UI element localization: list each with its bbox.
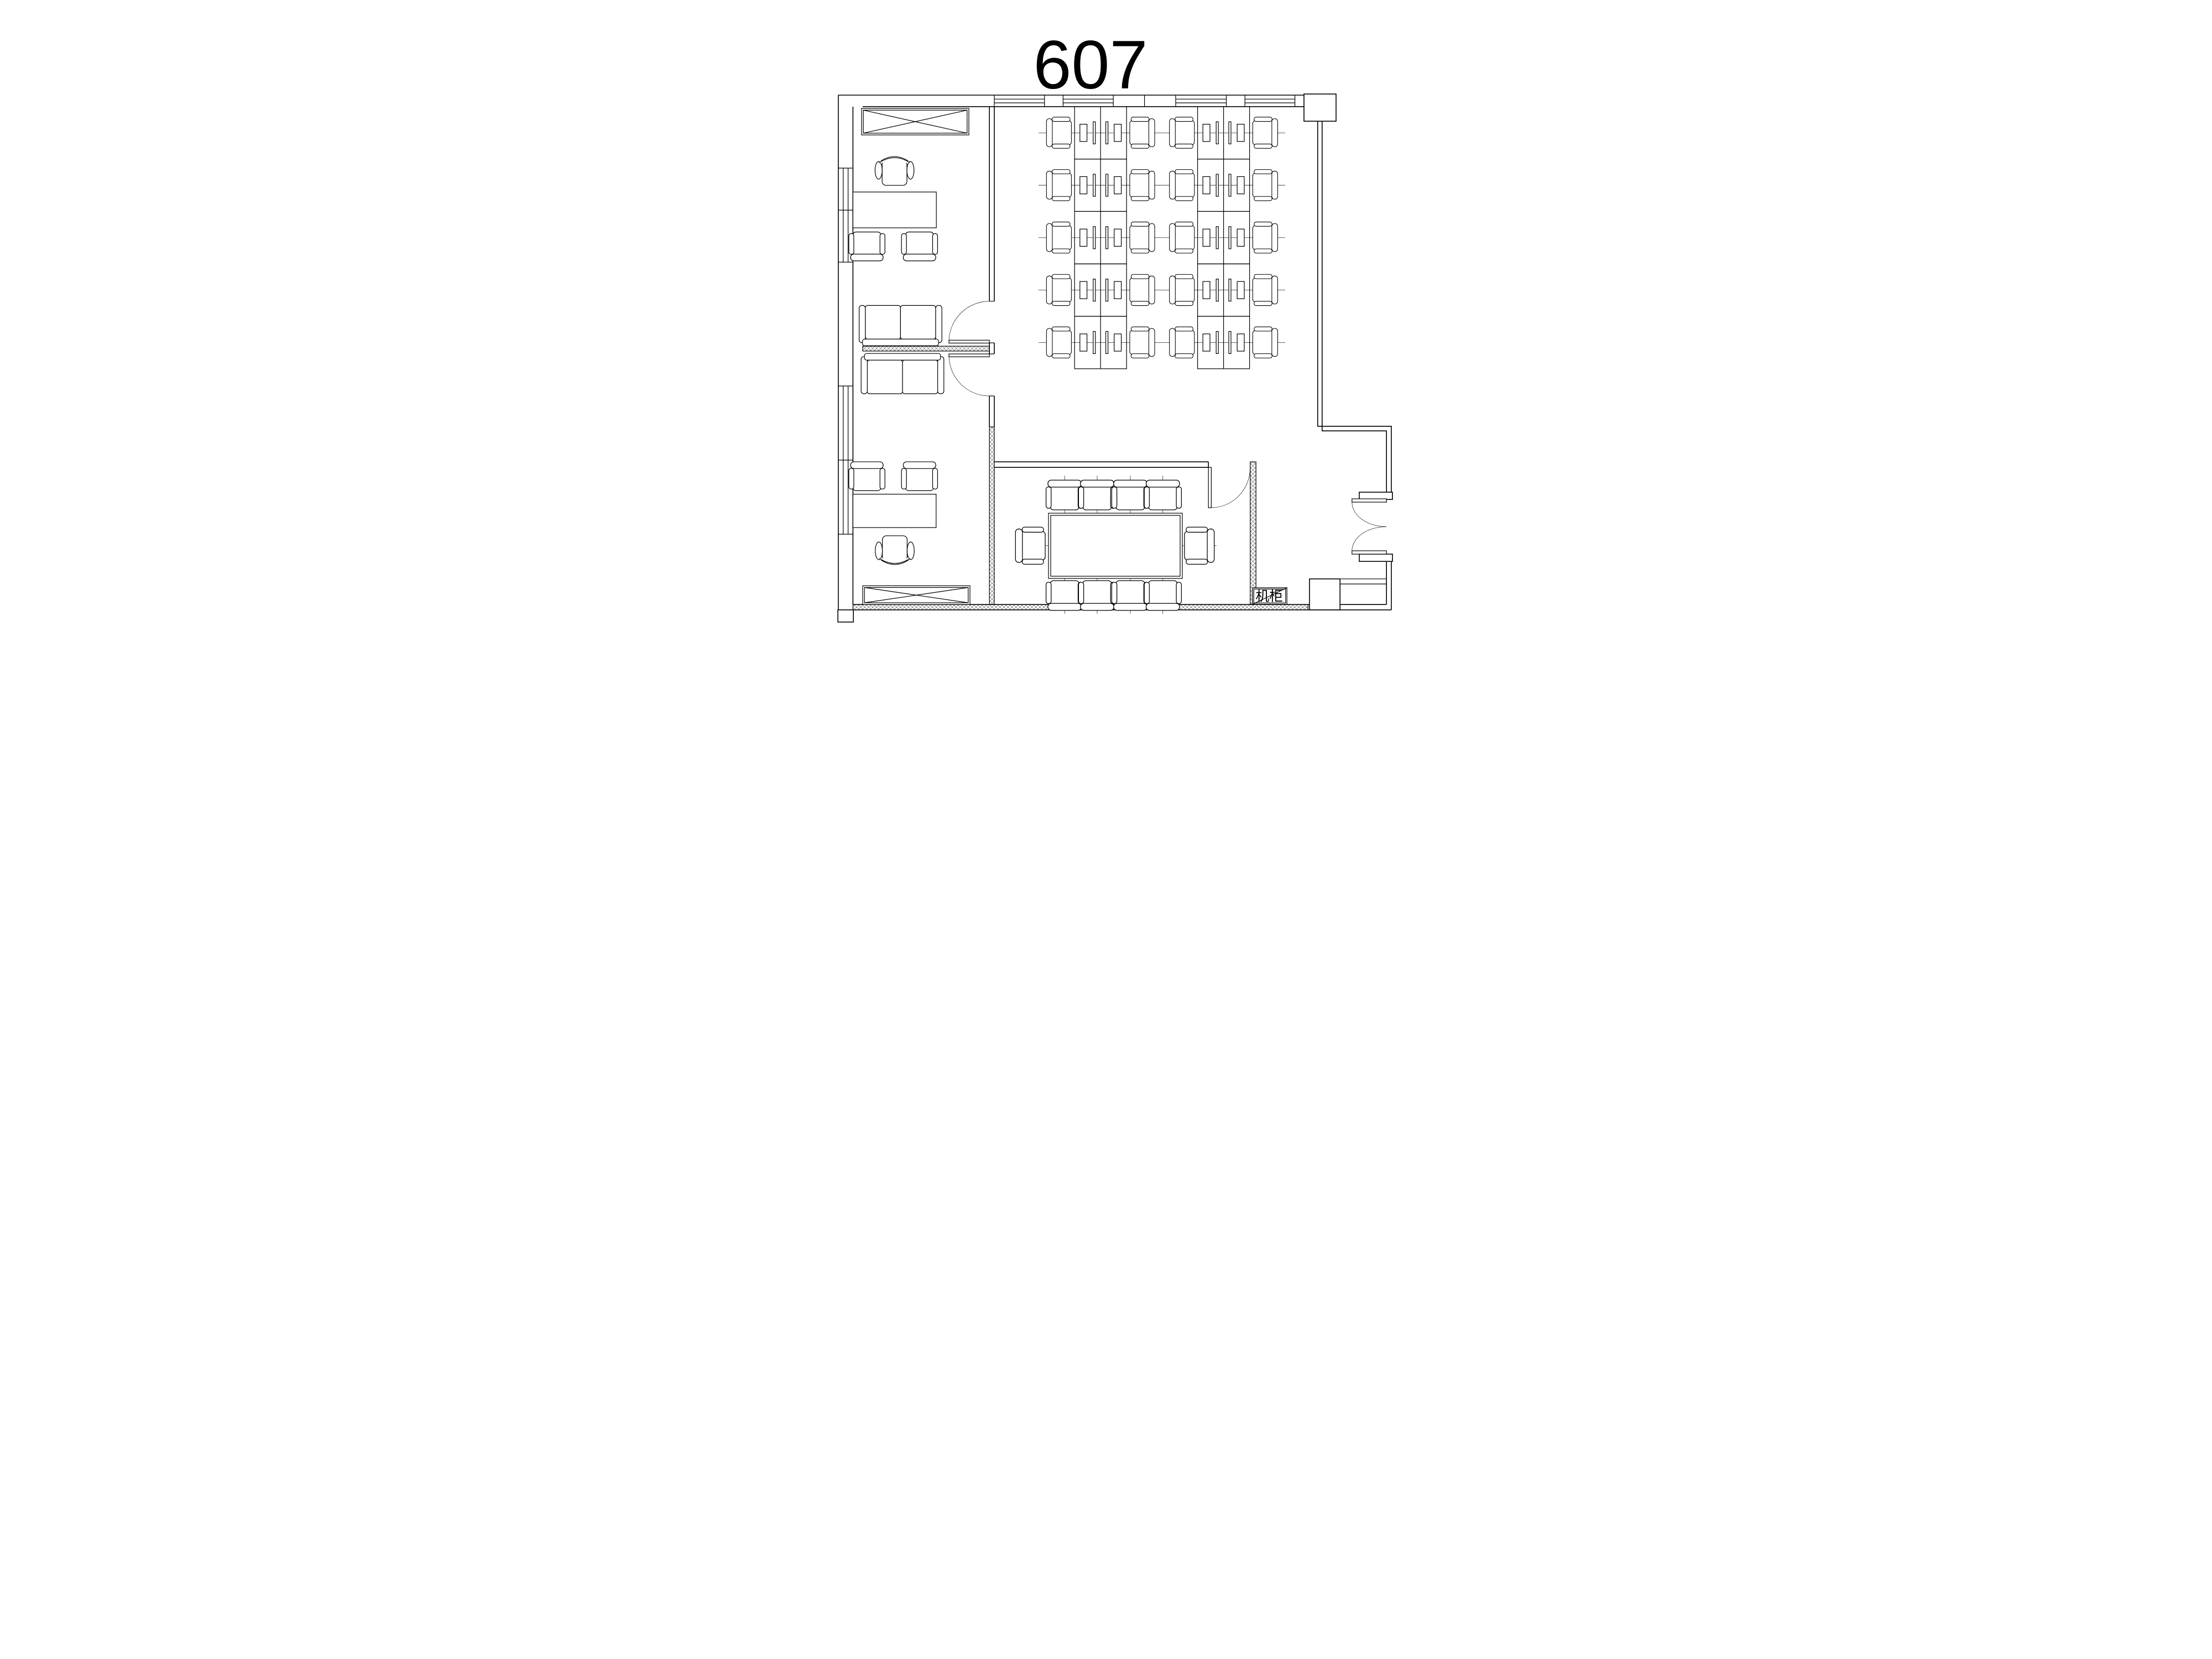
exec-chair <box>875 156 914 185</box>
task-chair <box>1046 327 1071 358</box>
monitor-icon <box>1114 124 1121 142</box>
monitor-icon <box>1237 124 1244 142</box>
desk-panel <box>1106 174 1108 196</box>
storage-cabinet <box>863 586 970 604</box>
task-chair <box>1130 117 1155 148</box>
door-leaf <box>1352 499 1386 502</box>
storage-cabinet <box>862 108 969 135</box>
task-chair <box>1170 274 1194 305</box>
door-swing-arc <box>1352 526 1386 551</box>
conf-chair <box>1046 480 1083 510</box>
task-chair <box>1130 327 1155 358</box>
monitor-icon <box>1237 281 1244 299</box>
exec-chair <box>875 536 914 565</box>
door-leaf <box>1208 467 1211 508</box>
conf-chair <box>1112 480 1149 510</box>
wall-column <box>1359 492 1392 499</box>
office2-door <box>949 354 989 396</box>
desk-panel <box>1106 227 1108 249</box>
conference-door <box>1208 467 1250 508</box>
monitor-icon <box>1080 124 1087 142</box>
task-chair <box>1253 327 1277 358</box>
wall-column <box>838 610 853 622</box>
monitor-icon <box>1080 281 1087 299</box>
conf-chair <box>1144 581 1181 611</box>
monitor-icon <box>1203 124 1210 142</box>
desk-panel <box>1229 122 1231 144</box>
desk-panel <box>1216 279 1218 301</box>
desk-panel <box>1216 122 1218 144</box>
sofa <box>861 353 944 394</box>
task-chair <box>1170 117 1194 148</box>
task-chair <box>1253 170 1277 201</box>
monitor-icon <box>1080 229 1087 246</box>
desk-panel <box>1229 174 1231 196</box>
wall-column <box>1310 579 1340 610</box>
desk-panel <box>1216 331 1218 353</box>
desk-panel <box>1106 279 1108 301</box>
desk-panel <box>1229 227 1231 249</box>
monitor-icon <box>1203 176 1210 194</box>
conf-chair <box>1078 581 1115 611</box>
task-chair <box>1170 170 1194 201</box>
door-swing-arc <box>1211 467 1250 508</box>
monitor-icon <box>1203 281 1210 299</box>
hatched-wall <box>989 427 994 604</box>
monitor-icon <box>1080 176 1087 194</box>
office-desk <box>853 192 936 228</box>
entry-door-leaf-bottom <box>1352 526 1386 554</box>
office-desk <box>853 494 936 528</box>
conf-chair <box>1185 527 1214 564</box>
hatched-wall <box>1250 462 1256 604</box>
guest-chair <box>901 232 937 261</box>
guest-chair <box>901 462 937 491</box>
monitor-icon <box>1237 229 1244 246</box>
desk-panel <box>1216 227 1218 249</box>
floor-plan-page: 607 机柜 <box>664 0 1548 664</box>
task-chair <box>1046 117 1071 148</box>
guest-chair <box>849 462 885 491</box>
monitor-icon <box>1203 229 1210 246</box>
desk-panel <box>1093 227 1095 249</box>
conf-chair <box>1078 480 1115 510</box>
monitor-icon <box>1237 334 1244 351</box>
guest-chair <box>849 232 885 261</box>
wall-column <box>1359 554 1392 561</box>
hatched-wall <box>863 346 989 351</box>
door-leaf <box>1352 551 1386 554</box>
desk-panel <box>1106 122 1108 144</box>
conf-chair <box>1112 581 1149 611</box>
desk-panel <box>1093 331 1095 353</box>
desk-panel <box>1216 174 1218 196</box>
sofa <box>859 305 942 346</box>
task-chair <box>1130 274 1155 305</box>
monitor-icon <box>1203 334 1210 351</box>
conf-chair <box>1046 581 1083 611</box>
task-chair <box>1170 327 1194 358</box>
desk-panel <box>1229 279 1231 301</box>
task-chair <box>1130 222 1155 253</box>
rack-label: 机柜 <box>1255 588 1283 604</box>
task-chair <box>1046 222 1071 253</box>
door-swing-arc <box>1352 502 1386 526</box>
monitor-icon <box>1080 334 1087 351</box>
door-leaf <box>949 354 989 357</box>
task-chair <box>1046 274 1071 305</box>
door-leaf <box>949 340 989 343</box>
entry-door-leaf-top <box>1352 499 1386 526</box>
desk-panel <box>1229 331 1231 353</box>
desk-panel <box>1093 174 1095 196</box>
monitor-icon <box>1114 281 1121 299</box>
door-swing-arc <box>949 301 989 342</box>
task-chair <box>1253 274 1277 305</box>
monitor-icon <box>1114 334 1121 351</box>
unit-title: 607 <box>1034 27 1148 103</box>
desk-panel <box>1093 122 1095 144</box>
door-swing-arc <box>949 356 989 396</box>
task-chair <box>1046 170 1071 201</box>
floor-plan: 607 机柜 <box>664 0 1548 664</box>
wall-column <box>1304 94 1336 121</box>
monitor-icon <box>1237 176 1244 194</box>
conf-chair <box>1144 480 1181 510</box>
desk-panel <box>1093 279 1095 301</box>
office1-door <box>949 301 989 343</box>
task-chair <box>1170 222 1194 253</box>
desk-panel <box>1106 331 1108 353</box>
monitor-icon <box>1114 176 1121 194</box>
conf-chair <box>1015 527 1045 564</box>
task-chair <box>1253 222 1277 253</box>
conference-table <box>1048 513 1182 578</box>
task-chair <box>1253 117 1277 148</box>
monitor-icon <box>1114 229 1121 246</box>
task-chair <box>1130 170 1155 201</box>
